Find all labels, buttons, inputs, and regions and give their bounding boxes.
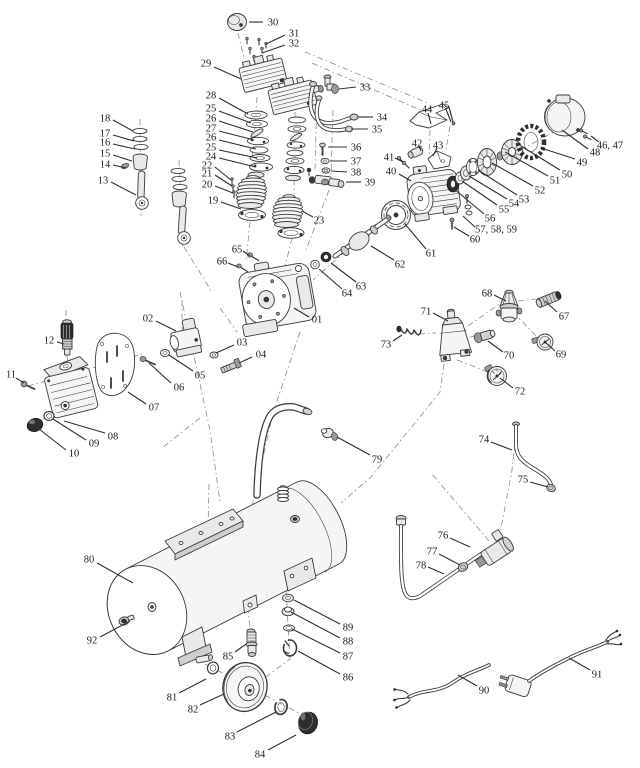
part-39-manifold-fitting — [309, 175, 344, 187]
part-label-63: 63 — [356, 282, 367, 293]
leader-line-16 — [113, 144, 135, 149]
part-88-flange-nut — [282, 607, 294, 616]
part-label-86: 86 — [343, 673, 354, 684]
part-label-30: 30 — [268, 18, 279, 29]
leader-line-07 — [128, 392, 146, 404]
part-label-66: 66 — [217, 257, 228, 268]
part-83-retainer-ring — [273, 698, 288, 715]
part-13-18-piston-rod-left — [120, 128, 148, 209]
part-02-cylinder-block — [166, 318, 203, 358]
leader-line-18 — [113, 120, 133, 131]
part-label-46-47: 46, 47 — [597, 141, 623, 152]
leader-line-70 — [488, 341, 503, 352]
part-label-35: 35 — [372, 125, 383, 136]
part-valve-plate-stack-right — [284, 117, 311, 181]
part-57-58-59-hardware — [465, 194, 472, 215]
part-label-15: 15 — [100, 149, 111, 160]
leader-line-11 — [16, 378, 24, 383]
part-70-fitting — [473, 328, 496, 343]
part-73-spring — [397, 326, 421, 335]
leader-line-57-58-59 — [463, 216, 475, 227]
leader-line-86 — [298, 651, 340, 674]
leader-line-78 — [428, 567, 444, 574]
part-label-02: 02 — [143, 314, 154, 325]
part-68-regulator — [496, 290, 522, 322]
leader-line-73 — [393, 335, 402, 341]
part-41-screws — [397, 156, 409, 168]
part-72-pressure-gauge — [484, 364, 506, 385]
part-label-70: 70 — [504, 351, 515, 362]
part-label-18: 18 — [100, 114, 111, 125]
part-label-14: 14 — [100, 160, 111, 171]
part-20-21-22-valve-screws — [231, 178, 236, 198]
part-label-79: 79 — [372, 455, 383, 466]
leader-line-28 — [219, 98, 248, 114]
part-label-10: 10 — [69, 449, 80, 460]
part-label-56: 56 — [485, 214, 496, 225]
leader-line-29 — [214, 67, 241, 79]
leader-line-64 — [319, 269, 342, 289]
part-71-pressure-switch — [435, 308, 472, 362]
part-label-61: 61 — [426, 249, 437, 260]
leader-line-81 — [179, 679, 206, 693]
part-78-exhaust-pipe — [396, 516, 481, 599]
part-05-washer — [161, 350, 170, 357]
leader-line-85 — [235, 644, 246, 652]
leader-line-27 — [219, 131, 254, 140]
part-label-39: 39 — [365, 178, 376, 189]
part-label-13: 13 — [98, 176, 109, 187]
part-23-cylinder — [273, 195, 305, 239]
exploded-parts-diagram: 0102030405060708091011121314151617181920… — [0, 0, 640, 768]
part-29-cylinder-head — [237, 51, 287, 93]
part-69-pressure-gauge — [532, 334, 553, 350]
callout-layer: 0102030405060708091011121314151617181920… — [6, 18, 623, 761]
part-67-nipple — [535, 290, 562, 308]
part-label-44: 44 — [422, 105, 433, 116]
part-label-85: 85 — [223, 652, 234, 663]
leader-line-49 — [541, 148, 575, 159]
leader-line-08 — [64, 421, 105, 433]
leader-line-79 — [337, 437, 370, 455]
part-label-33: 33 — [360, 83, 371, 94]
part-label-41: 41 — [384, 153, 395, 164]
part-label-28: 28 — [206, 91, 217, 102]
leader-line-74 — [491, 442, 512, 450]
part-label-38: 38 — [351, 168, 362, 179]
part-label-11: 11 — [6, 370, 16, 381]
part-label-52: 52 — [535, 186, 546, 197]
part-label-17: 17 — [100, 129, 111, 140]
leader-line-21 — [215, 175, 232, 186]
part-35-discharge-tube — [316, 96, 353, 132]
part-label-29: 29 — [201, 59, 212, 70]
leader-line-82 — [200, 694, 224, 705]
leader-line-75 — [530, 482, 548, 487]
part-label-23: 23 — [314, 216, 325, 227]
leader-line-77 — [439, 554, 460, 565]
leader-line-33 — [339, 87, 356, 89]
leader-line-76 — [450, 538, 470, 547]
part-43-clamp-bracket — [428, 151, 451, 169]
part-label-88: 88 — [343, 637, 354, 648]
part-label-06: 06 — [174, 383, 185, 394]
leader-line-84 — [268, 735, 296, 750]
part-label-82: 82 — [188, 705, 199, 716]
part-label-87: 87 — [343, 652, 354, 663]
part-label-12: 12 — [44, 336, 55, 347]
leader-line-05 — [169, 355, 193, 371]
leader-line-89 — [294, 600, 340, 624]
part-label-20: 20 — [202, 180, 213, 191]
part-label-04: 04 — [256, 350, 267, 361]
part-62-crankshaft — [335, 214, 392, 257]
part-label-53: 53 — [519, 195, 530, 206]
part-label-19: 19 — [208, 196, 219, 207]
part-label-92: 92 — [87, 636, 98, 647]
part-label-78: 78 — [416, 561, 427, 572]
leader-line-62 — [371, 246, 394, 260]
part-label-55: 55 — [499, 205, 510, 216]
leader-line-88 — [291, 612, 340, 638]
part-label-91: 91 — [592, 670, 603, 681]
part-07-mounting-plate — [95, 333, 134, 395]
part-49-fan-guard-ring — [518, 126, 544, 158]
part-label-60: 60 — [470, 235, 481, 246]
part-label-09: 09 — [89, 439, 100, 450]
part-label-83: 83 — [225, 732, 236, 743]
part-12-filter-element — [61, 320, 73, 355]
part-09-seal-ring — [44, 412, 54, 421]
part-label-68: 68 — [482, 289, 493, 300]
part-01-crankcase — [232, 255, 318, 337]
part-label-07: 07 — [149, 403, 160, 414]
part-label-72: 72 — [515, 387, 526, 398]
leader-line-38 — [331, 171, 347, 172]
part-46-47-screws — [579, 129, 591, 140]
part-piston-rod-right — [171, 168, 190, 244]
part-37-washer — [321, 158, 329, 163]
part-label-62: 62 — [395, 260, 406, 271]
leader-line-22 — [215, 167, 231, 180]
part-79-reducer-fitting — [321, 427, 338, 441]
part-label-08: 08 — [108, 432, 119, 443]
part-60-bolt — [450, 218, 454, 229]
part-label-71: 71 — [421, 307, 432, 318]
leader-line-04 — [239, 357, 252, 363]
part-85-valve-fitting — [246, 629, 257, 657]
leader-line-63 — [331, 263, 356, 282]
part-label-45: 45 — [439, 101, 450, 112]
part-label-76: 76 — [438, 531, 449, 542]
leader-line-60 — [454, 227, 469, 236]
part-label-49: 49 — [577, 158, 588, 169]
part-label-73: 73 — [381, 340, 392, 351]
part-label-57-58-59: 57, 58, 59 — [475, 225, 517, 236]
part-91-power-cord — [497, 630, 622, 698]
part-66-bolt — [237, 264, 248, 272]
part-label-36: 36 — [351, 143, 362, 154]
leader-line-54 — [469, 176, 507, 199]
part-label-05: 05 — [195, 371, 206, 382]
part-30-intake-cap — [228, 14, 247, 31]
part-label-25: 25 — [206, 143, 217, 154]
part-label-34: 34 — [377, 113, 388, 124]
part-label-40: 40 — [386, 167, 397, 178]
part-82-wheel — [218, 658, 271, 715]
leader-line-17 — [113, 135, 134, 141]
leader-line-06 — [149, 363, 171, 383]
leader-line-03 — [216, 345, 234, 353]
part-19-cylinder — [236, 176, 267, 221]
part-33-elbow-fitting — [324, 75, 339, 94]
part-label-48: 48 — [590, 148, 601, 159]
part-64-washer — [311, 260, 320, 269]
part-80-air-tank — [92, 481, 346, 668]
part-86-clip — [282, 637, 297, 656]
part-label-64: 64 — [342, 289, 353, 300]
leader-line-91 — [569, 658, 590, 670]
leader-line-13 — [111, 182, 136, 195]
part-38-nut — [322, 168, 330, 173]
part-06-screw — [140, 356, 155, 364]
leader-line-23 — [302, 211, 313, 217]
part-label-43: 43 — [433, 141, 444, 152]
part-label-51: 51 — [550, 176, 561, 187]
part-label-74: 74 — [479, 435, 490, 446]
part-48-end-cover — [544, 95, 585, 136]
part-81-axle-washer — [206, 661, 220, 675]
part-label-67: 67 — [559, 312, 570, 323]
part-45-pin — [449, 107, 455, 125]
leader-line-10 — [39, 429, 66, 450]
part-label-54: 54 — [509, 199, 520, 210]
part-36-bolt — [320, 143, 326, 155]
leader-line-61 — [405, 224, 426, 249]
part-84-hub-cap — [296, 710, 320, 736]
part-89-nut — [283, 594, 294, 602]
part-label-50: 50 — [562, 170, 573, 181]
part-04-bolt — [220, 358, 242, 374]
leader-line-90 — [458, 675, 477, 686]
part-label-01: 01 — [312, 315, 323, 326]
part-label-32: 32 — [289, 39, 300, 50]
leader-line-02 — [156, 321, 176, 331]
part-label-65: 65 — [232, 245, 243, 256]
part-90-motor-cord — [393, 665, 489, 709]
part-label-69: 69 — [556, 350, 567, 361]
part-label-81: 81 — [167, 693, 178, 704]
part-87-washer — [284, 625, 295, 631]
part-label-42: 42 — [412, 139, 423, 150]
leader-line-15 — [113, 155, 132, 161]
part-label-90: 90 — [479, 686, 490, 697]
part-label-37: 37 — [351, 157, 362, 168]
part-65-bolt — [247, 253, 258, 261]
part-08-air-filter-housing — [41, 355, 99, 419]
part-valve-plate-stack-left — [245, 111, 273, 178]
part-63-bearing — [321, 252, 331, 262]
part-label-03: 03 — [237, 338, 248, 349]
part-label-80: 80 — [84, 555, 95, 566]
leader-line-87 — [292, 629, 340, 653]
part-label-77: 77 — [427, 547, 438, 558]
part-76-check-valve — [473, 529, 515, 570]
part-75-elbow-nut — [545, 483, 556, 493]
part-label-75: 75 — [518, 475, 529, 486]
part-label-89: 89 — [343, 623, 354, 634]
leader-line-31 — [266, 35, 285, 44]
leader-line-71 — [433, 313, 448, 321]
leader-line-83 — [237, 712, 276, 732]
leader-line-20 — [215, 186, 233, 193]
part-label-84: 84 — [255, 750, 266, 761]
diagram-page: 0102030405060708091011121314151617181920… — [0, 0, 640, 768]
